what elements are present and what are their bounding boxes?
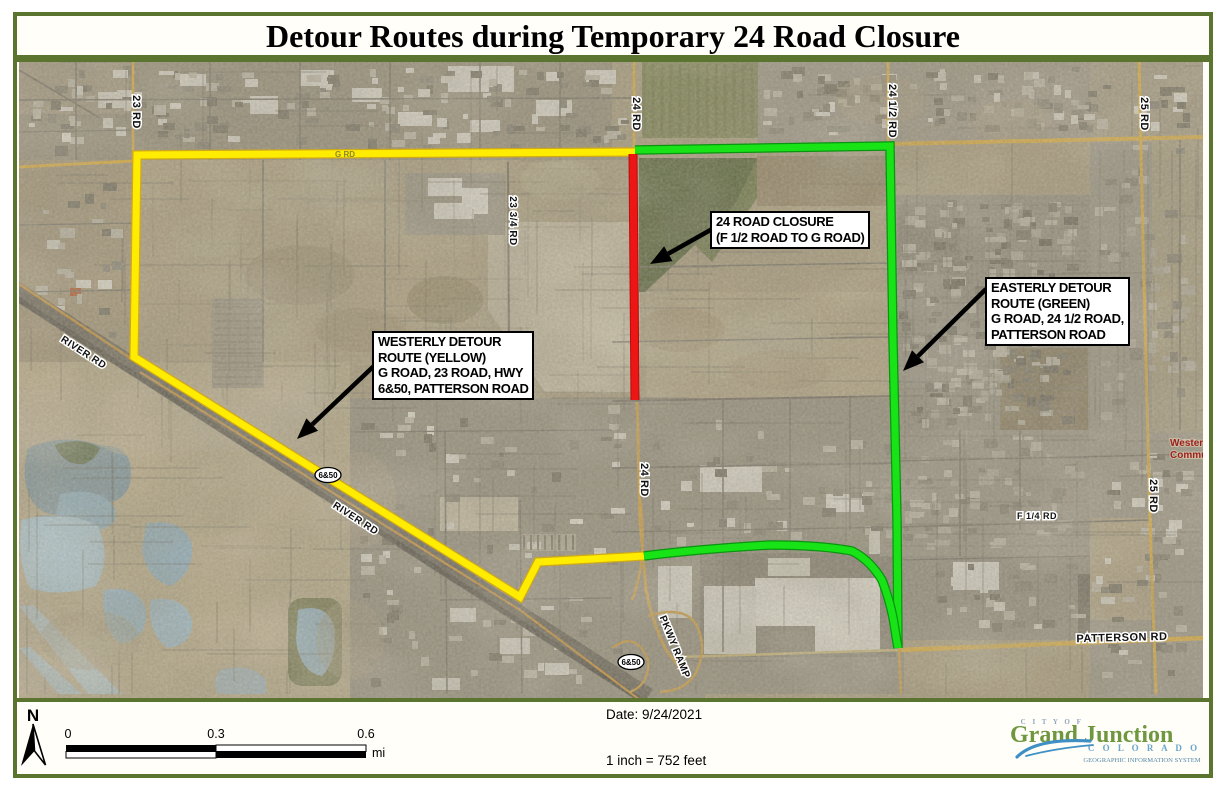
svg-text:mi: mi bbox=[372, 746, 385, 760]
svg-text:23 RD: 23 RD bbox=[130, 95, 142, 129]
svg-text:6&50: 6&50 bbox=[621, 658, 641, 667]
svg-text:N: N bbox=[27, 706, 39, 725]
svg-text:PATTERSON RD: PATTERSON RD bbox=[1076, 631, 1167, 645]
svg-text:6&50: 6&50 bbox=[318, 471, 338, 480]
svg-text:23 3/4 RD: 23 3/4 RD bbox=[507, 196, 518, 246]
svg-text:25 RD: 25 RD bbox=[1147, 479, 1159, 513]
svg-text:Commu: Commu bbox=[1170, 450, 1203, 461]
svg-text:Wester: Wester bbox=[1170, 438, 1203, 449]
svg-text:F 1/4 RD: F 1/4 RD bbox=[1017, 511, 1057, 521]
svg-text:GEOGRAPHIC INFORMATION SYSTEM: GEOGRAPHIC INFORMATION SYSTEM bbox=[1083, 757, 1200, 764]
svg-text:C O L O R A D O: C O L O R A D O bbox=[1088, 743, 1200, 753]
svg-text:0.6: 0.6 bbox=[357, 727, 374, 741]
svg-text:24 RD: 24 RD bbox=[630, 97, 642, 131]
svg-text:24 RD: 24 RD bbox=[638, 463, 650, 497]
svg-text:0.3: 0.3 bbox=[207, 727, 224, 741]
svg-text:24 1/2 RD: 24 1/2 RD bbox=[886, 84, 898, 138]
svg-text:25 RD: 25 RD bbox=[1138, 97, 1150, 131]
svg-text:0: 0 bbox=[65, 727, 72, 741]
svg-text:G RD: G RD bbox=[335, 150, 355, 159]
